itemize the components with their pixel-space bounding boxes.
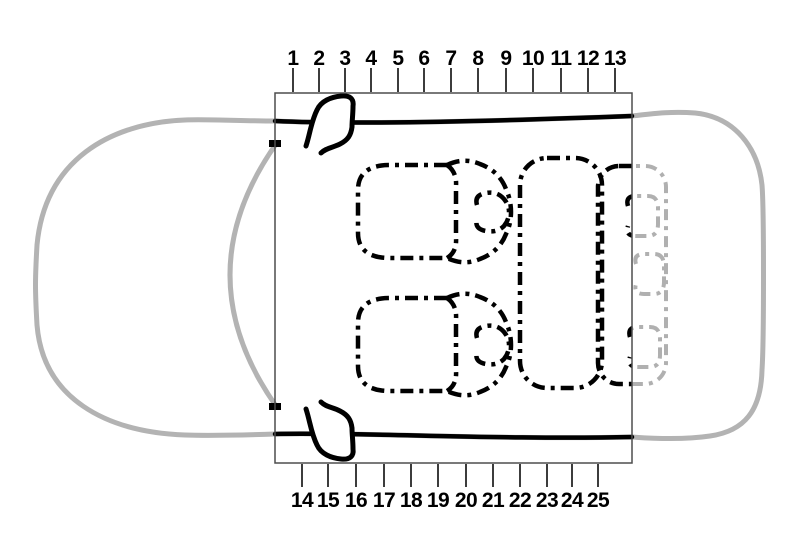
bottom-scale: 14 15 16 17 18 19 20 21 22 23 24 25 (291, 464, 610, 512)
visor-bottom (306, 402, 353, 459)
tick-label: 1 (287, 47, 299, 70)
tick-label: 7 (445, 47, 456, 70)
tick-label: 22 (509, 489, 531, 512)
tick-label: 16 (345, 489, 367, 512)
tick-label: 20 (455, 489, 477, 512)
rear-bench-cushion (520, 158, 602, 388)
tick-label: 12 (577, 47, 599, 70)
tick-label: 9 (500, 47, 511, 70)
front-seat-upper (358, 161, 511, 263)
tick-label: 21 (482, 489, 505, 512)
top-scale: 1 2 3 4 5 6 7 8 9 10 11 12 13 (287, 47, 626, 92)
car-body-outline (36, 112, 764, 438)
tick-label: 18 (400, 489, 423, 512)
tick-label: 24 (561, 489, 584, 512)
tick-label: 3 (339, 47, 350, 70)
car-roof-diagram: 1 2 3 4 5 6 7 8 9 10 11 12 13 14 15 (0, 0, 800, 560)
tick-label: 23 (536, 489, 558, 512)
tick-label: 10 (522, 47, 544, 70)
tick-label: 19 (427, 489, 449, 512)
tick-label: 14 (291, 489, 314, 512)
tick-label: 25 (587, 489, 610, 512)
tick-label: 15 (317, 489, 340, 512)
diagram-canvas: 1 2 3 4 5 6 7 8 9 10 11 12 13 14 15 (0, 0, 800, 560)
tick-label: 6 (418, 47, 429, 70)
car-body (36, 112, 764, 438)
tick-label: 11 (550, 47, 572, 70)
front-seat-lower (358, 294, 511, 396)
windshield-arc (230, 144, 276, 406)
tick-label: 5 (392, 47, 404, 70)
tick-label: 13 (604, 47, 626, 70)
tick-label: 17 (373, 489, 395, 512)
tick-label: 8 (472, 47, 484, 70)
visor-top (306, 96, 353, 153)
tick-label: 4 (365, 47, 377, 70)
tick-label: 2 (313, 47, 324, 70)
